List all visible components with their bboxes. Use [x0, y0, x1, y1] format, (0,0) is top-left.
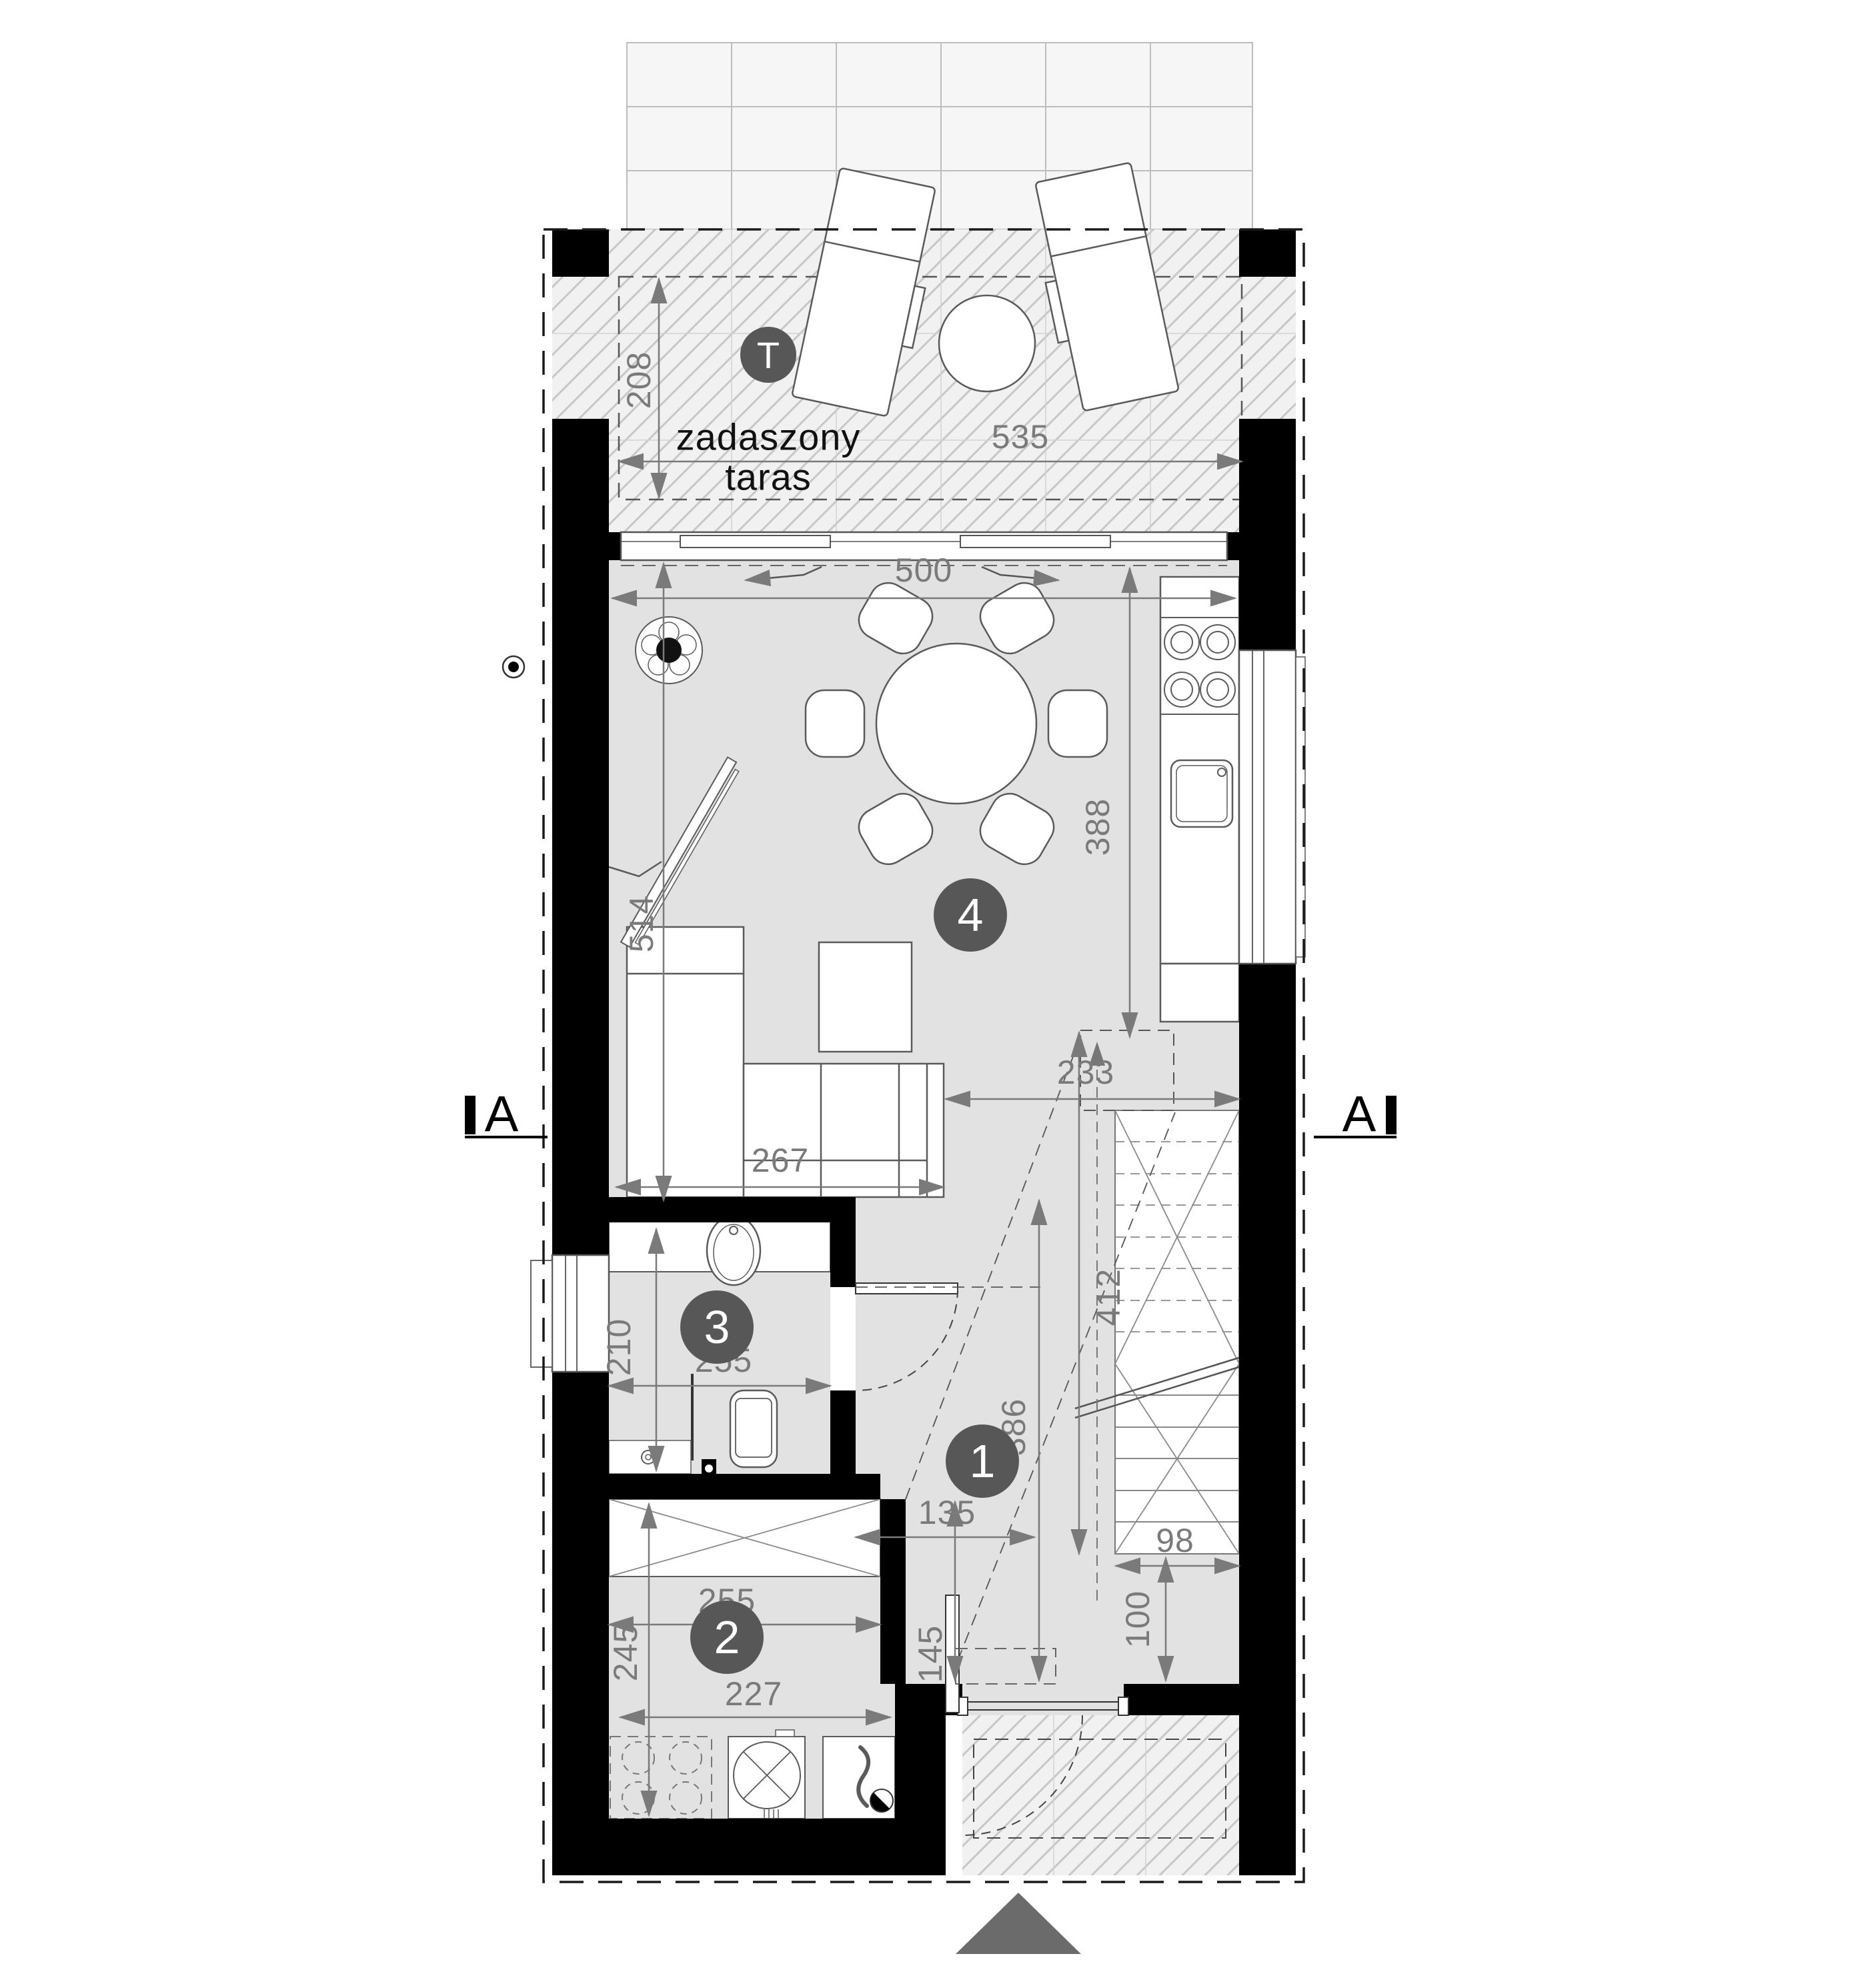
dim-stair-width: 98 — [1156, 1521, 1194, 1560]
terrace-name-line1: zadaszony — [676, 415, 861, 459]
dim-living-depth: 514 — [622, 895, 661, 952]
section-marker-right-line — [1314, 1136, 1396, 1138]
dim-hall-width: 135 — [918, 1493, 976, 1532]
room-badge-1: 1 — [946, 1424, 1019, 1498]
terrace-name-line2: taras — [725, 455, 812, 499]
entrance-arrow — [956, 1893, 1081, 1954]
kitchen-counter — [1160, 577, 1239, 1022]
terrace-area — [552, 229, 1296, 540]
dim-bath-depth: 210 — [600, 1318, 638, 1376]
dim-room2-depth: 245 — [606, 1624, 645, 1681]
dim-entry-depth: 100 — [1118, 1591, 1157, 1648]
section-marker-right-bar — [1386, 1096, 1396, 1134]
exterior-lamp — [503, 656, 524, 678]
terrace-table — [939, 295, 1035, 391]
section-marker-left: A — [485, 1086, 519, 1144]
potted-plant — [636, 617, 702, 684]
dim-stair-run: 412 — [1089, 1268, 1128, 1326]
dim-terrace-depth: 208 — [620, 351, 658, 409]
dim-sofa-run: 267 — [752, 1141, 809, 1180]
section-marker-left-line — [465, 1136, 548, 1138]
section-marker-left-bar — [465, 1096, 476, 1134]
floor-plan-page: 208 535 500 388 514 267 233 412 210 255 … — [0, 0, 1874, 1988]
entrance-porch — [962, 1715, 1239, 1875]
section-marker-right: A — [1342, 1086, 1376, 1144]
paver-grid — [627, 43, 1252, 229]
room-badge-3: 3 — [680, 1290, 754, 1364]
dim-terrace-width: 535 — [992, 417, 1049, 456]
dim-closet-top: 233 — [1057, 1053, 1114, 1092]
dim-kitchen-run: 388 — [1078, 798, 1117, 856]
coffee-table — [819, 942, 912, 1052]
dim-nook-depth: 145 — [911, 1625, 950, 1683]
floor-plan-drawing — [0, 0, 1874, 1988]
room-badge-4: 4 — [934, 878, 1007, 952]
terrace-badge: T — [740, 327, 796, 383]
dim-living-width: 500 — [895, 551, 952, 590]
dim-room2-width: 227 — [725, 1675, 782, 1713]
room-badge-2: 2 — [690, 1601, 764, 1674]
